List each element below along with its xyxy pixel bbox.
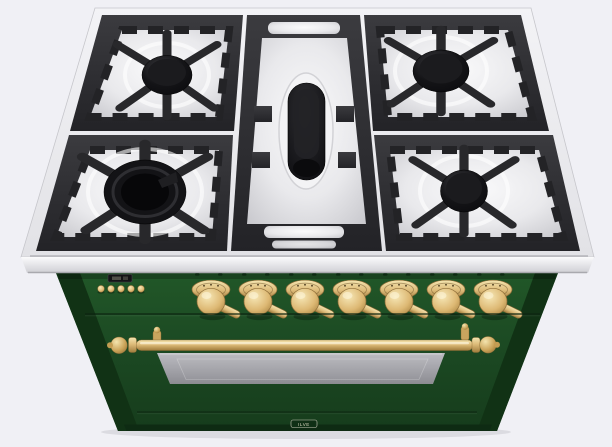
brand-badge: ILVE <box>291 420 317 428</box>
grate-tab <box>336 106 354 122</box>
oven-window-inner <box>177 359 428 380</box>
product-render: ILVE <box>0 0 612 447</box>
handle-bar-highlight <box>140 342 469 344</box>
handle-finial-left <box>111 337 128 354</box>
range-svg: ILVE <box>0 0 612 447</box>
panel-button-1[interactable] <box>98 285 105 292</box>
grate-rear-right <box>364 15 549 131</box>
cooktop <box>21 8 594 273</box>
handle-finial-tip <box>107 342 113 348</box>
clock-digits <box>123 277 128 281</box>
cooktop-front-lip <box>21 257 594 273</box>
panel-button-4[interactable] <box>128 285 135 292</box>
tray-slot-bottom2 <box>272 241 336 249</box>
panel-button-2[interactable] <box>108 285 115 292</box>
handle-finial-tip <box>494 342 500 348</box>
burner-cap-top <box>148 59 186 86</box>
burner-cap-top <box>446 173 482 204</box>
panel-button-5[interactable] <box>138 285 145 292</box>
handle-collar-right <box>472 338 480 353</box>
panel-button-3[interactable] <box>118 285 125 292</box>
handle-collar-left <box>129 338 137 353</box>
clock-digits <box>112 277 121 281</box>
tray-slot-top <box>268 22 340 34</box>
tray-slot-bottom <box>264 226 344 238</box>
grate-tab <box>252 152 270 168</box>
handle-post-cap <box>154 327 160 333</box>
handle-post-cap <box>462 323 468 329</box>
griddle-top <box>294 89 319 159</box>
badge-label: ILVE <box>298 422 310 427</box>
grate-center <box>231 15 382 251</box>
burner-cap-top <box>420 54 463 84</box>
handle-bar <box>136 340 473 351</box>
grate-tab <box>338 152 356 168</box>
grate-front-left <box>36 135 233 251</box>
grate-tab <box>254 106 272 122</box>
griddle-foot <box>293 159 320 177</box>
grate-front-right <box>374 135 580 251</box>
handle-finial-right <box>480 337 497 354</box>
